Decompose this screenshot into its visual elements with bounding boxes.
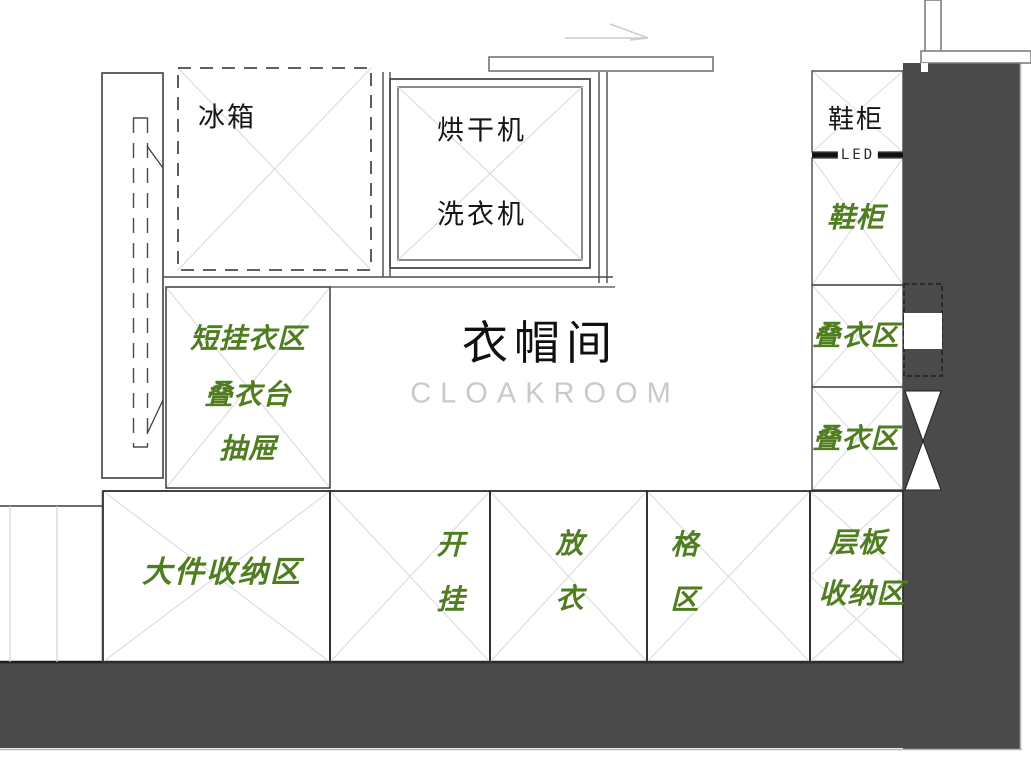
wall-opening-marker bbox=[904, 284, 942, 376]
left-wall-strip bbox=[102, 73, 163, 478]
left-corridor bbox=[0, 491, 103, 662]
put-clothes-box bbox=[490, 491, 647, 662]
overhead-shelf-bar bbox=[489, 57, 713, 71]
fold-zone-2-label: 叠衣区 bbox=[812, 425, 899, 453]
washer-label: 洗衣机 bbox=[437, 202, 527, 229]
put-clothes-label-1: 放 bbox=[555, 530, 584, 558]
put-clothes-label-2: 衣 bbox=[555, 585, 584, 613]
shoe-cabinet-top-label: 鞋柜 bbox=[828, 107, 884, 133]
shelf-storage-label-1: 层板 bbox=[829, 529, 887, 557]
fridge-label: 冰箱 bbox=[198, 105, 256, 132]
fold-zone-1-label: 叠衣区 bbox=[812, 322, 899, 350]
bulk-storage-label: 大件收纳区 bbox=[142, 558, 302, 588]
grid-zone-label-1: 格 bbox=[670, 531, 699, 559]
wall-stub-top-right bbox=[921, 0, 1031, 72]
shoe-cabinet-green-label: 鞋柜 bbox=[827, 204, 885, 232]
grid-zone-label-2: 区 bbox=[670, 586, 699, 614]
washer-dryer-box bbox=[390, 79, 590, 268]
grid-zone-box bbox=[647, 491, 810, 662]
shelf-storage-label-2: 收纳区 bbox=[818, 580, 905, 608]
open-hang-label-2: 挂 bbox=[436, 586, 465, 614]
fold-table-label: 叠衣台 bbox=[204, 381, 291, 409]
room-title-cn: 衣帽间 bbox=[462, 321, 618, 367]
room-title-en: CLOAKROOM bbox=[410, 380, 680, 409]
cloakroom-floor-plan: 冰箱 烘干机 洗衣机 鞋柜 LED 鞋柜 叠衣区 叠衣区 衣帽间 CLOAKRO… bbox=[0, 0, 1031, 757]
fridge-box bbox=[178, 68, 371, 270]
direction-arrow-icon bbox=[565, 24, 648, 40]
drawer-label: 抽屉 bbox=[219, 435, 277, 463]
open-hang-label-1: 开 bbox=[436, 531, 465, 559]
open-hang-box bbox=[330, 491, 490, 662]
led-label: LED bbox=[838, 148, 878, 162]
shelf-storage-box bbox=[810, 491, 903, 662]
dryer-label: 烘干机 bbox=[437, 118, 527, 145]
short-hang-zone-label: 短挂衣区 bbox=[190, 325, 306, 353]
